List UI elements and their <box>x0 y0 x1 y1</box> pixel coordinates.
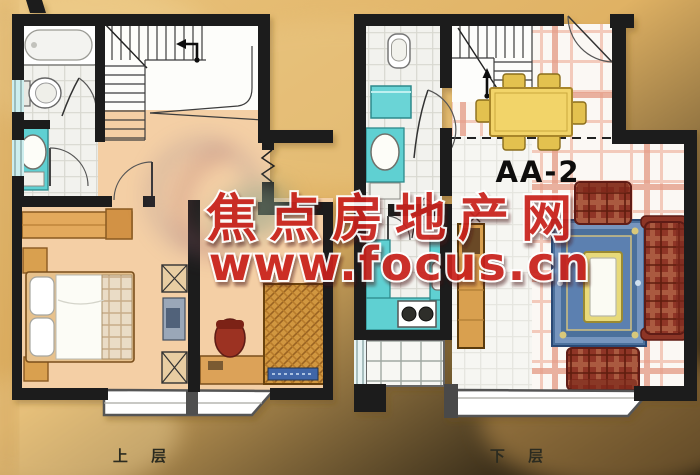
stove <box>398 301 436 327</box>
kitchen-balcony <box>366 340 444 386</box>
dining-chair <box>503 74 525 89</box>
double-bed <box>26 272 134 362</box>
unit-label: AA-2 <box>495 155 580 189</box>
dining-chair <box>571 102 586 124</box>
vanity-sink-lower <box>366 128 404 199</box>
nightstand-top <box>23 248 47 273</box>
computer-desk <box>163 298 185 340</box>
dining-chair <box>503 135 525 150</box>
window-lower-plan <box>354 340 366 384</box>
window-bay-upper-plan <box>104 390 273 415</box>
floor-label-upper: 上 层 <box>113 447 175 465</box>
toilet <box>21 78 61 108</box>
desk <box>200 356 266 384</box>
bathtub <box>20 25 98 65</box>
sofa <box>641 216 687 340</box>
floorplan-canvas: AA-2 焦点房地产网 www.focus.cn 上 层 下 层 <box>0 0 700 475</box>
armchair-bottom <box>567 348 639 390</box>
watermark-line2: www.focus.cn <box>209 237 592 291</box>
floorplan-image: AA-2 焦点房地产网 www.focus.cn 上 层 下 层 <box>0 0 700 475</box>
pillow <box>30 277 54 315</box>
dining-chair <box>476 100 491 122</box>
rattan-bed <box>264 284 330 384</box>
floor-label-lower: 下 层 <box>490 447 552 465</box>
dining-chair <box>538 135 560 150</box>
washing-machine <box>371 86 411 118</box>
chair <box>215 319 245 357</box>
wall-hung-toilet <box>388 34 410 68</box>
wardrobe <box>22 209 132 239</box>
pillow <box>30 318 54 356</box>
dining-chair <box>538 74 560 89</box>
